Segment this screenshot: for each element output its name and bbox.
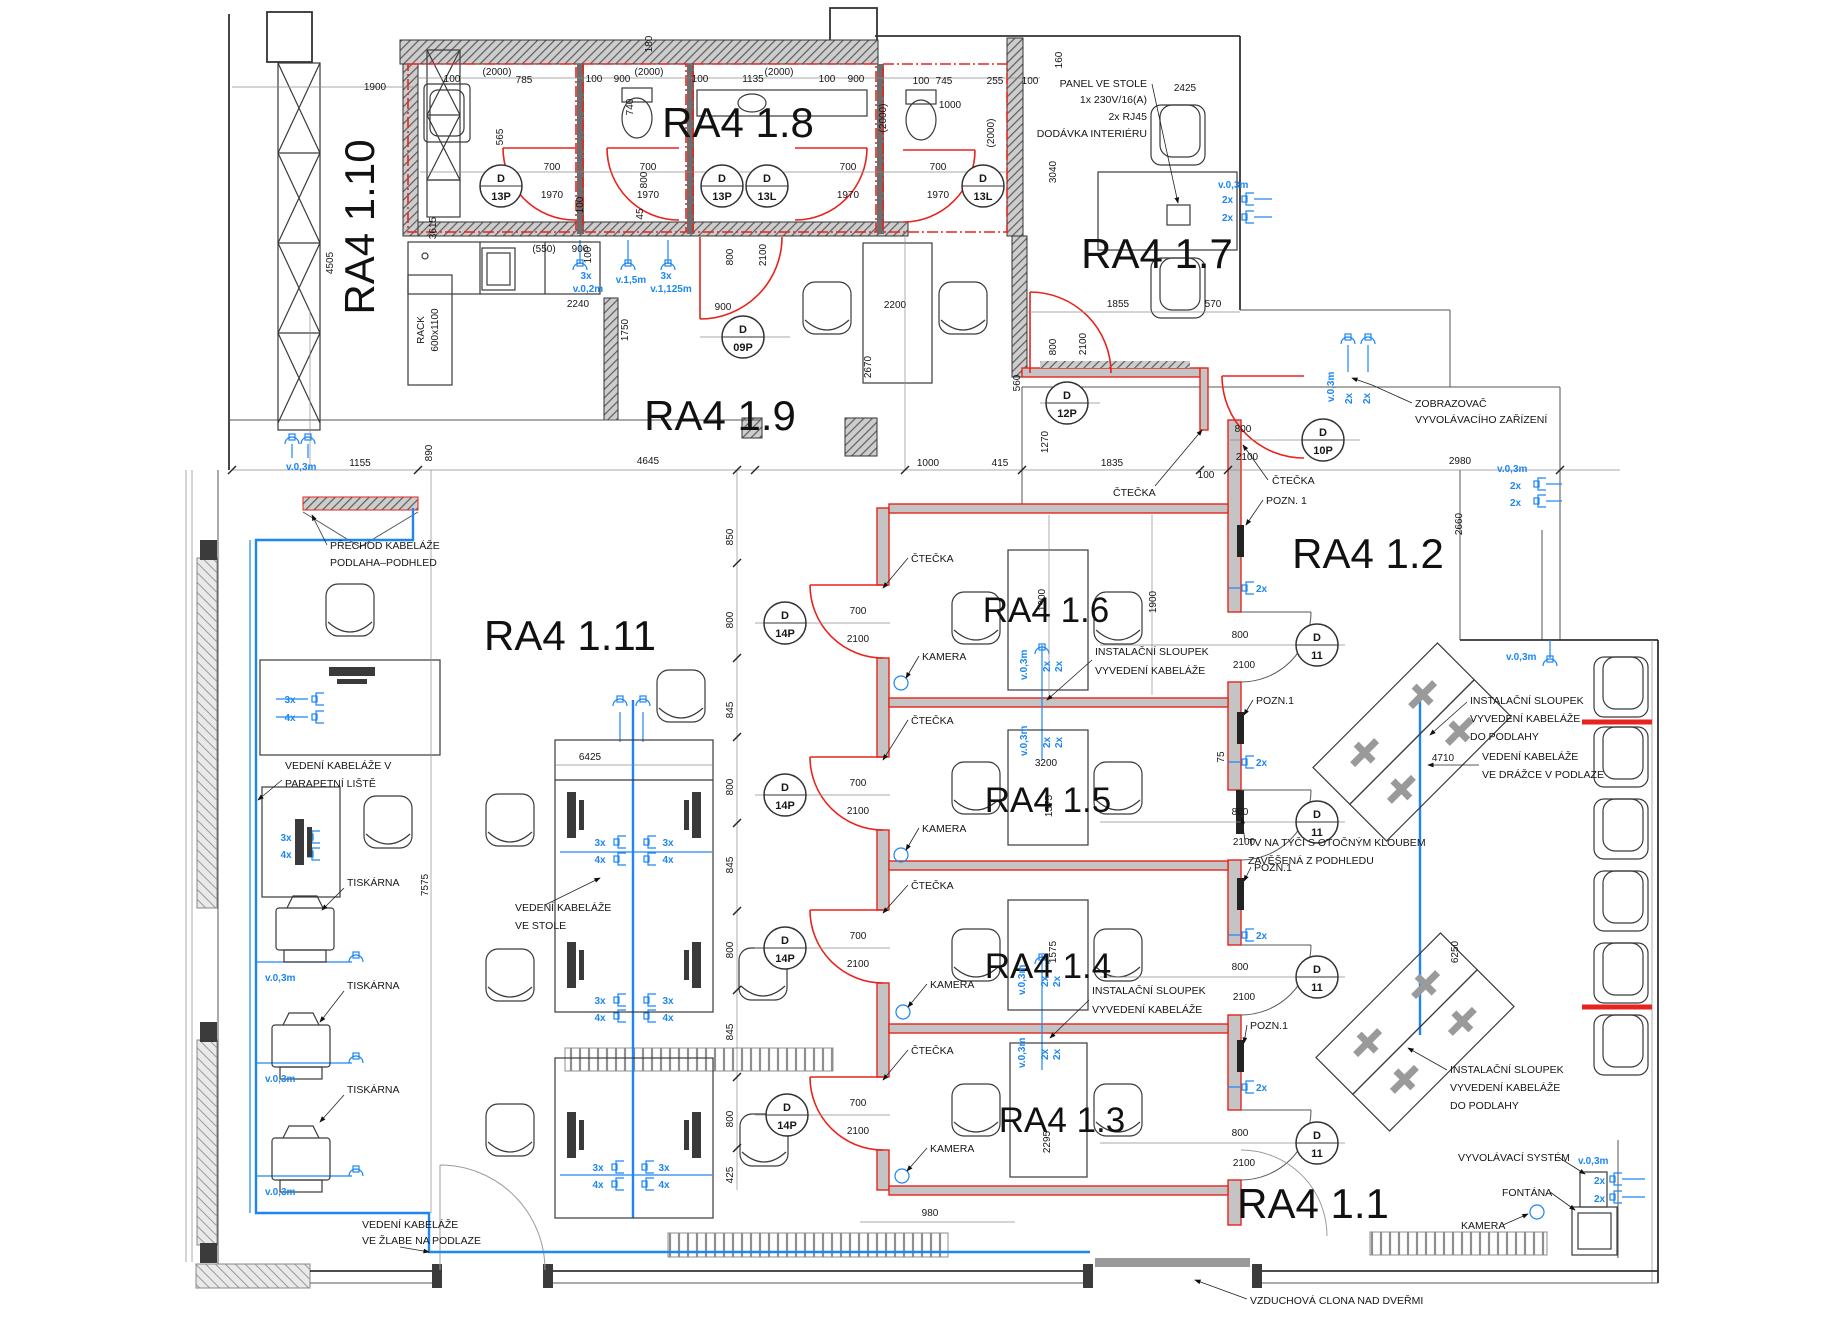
display-note: ZOBRAZOVAČ — [1415, 397, 1487, 410]
dim-text: 100 — [819, 74, 836, 85]
svg-text:14P: 14P — [775, 953, 795, 965]
dim-text: 2660 — [1454, 512, 1465, 535]
install-column-floor-note: VYVEDENÍ KABELÁŽE — [1450, 1081, 1560, 1094]
door-dim: 800 — [1232, 962, 1249, 973]
height-note: v.0,3m — [1326, 372, 1337, 402]
door-dim: 2100 — [1233, 1158, 1256, 1169]
printer — [272, 1013, 330, 1079]
count-note: 3x — [594, 996, 606, 1007]
dim-text: 255 — [987, 76, 1004, 87]
count-note: 4x — [594, 1013, 606, 1024]
dim-text: 900 — [614, 74, 631, 85]
height-note: v.0,3m — [265, 1187, 295, 1198]
dim-text: 100 — [444, 74, 461, 85]
shaft-box — [267, 12, 312, 62]
count-note: 4x — [280, 850, 292, 861]
svg-text:14P: 14P — [777, 1120, 797, 1132]
fountain-label: FONTÁNA — [1502, 1186, 1552, 1199]
parapet-note: PARAPETNÍ LIŠTĚ — [285, 777, 376, 790]
door-dim: 2100 — [1233, 660, 1256, 671]
height-note: v.1,125m — [650, 284, 692, 295]
dim-text: 900 — [572, 244, 589, 255]
room-label-ra4-1-2: RA4 1.2 — [1292, 530, 1444, 577]
floor-trough-note: VE ŽLABE NA PODLAZE — [362, 1234, 481, 1247]
table-panel — [1167, 205, 1190, 225]
install-column-note: INSTALAČNÍ SLOUPEK — [1092, 984, 1206, 997]
door-dim: 700 — [850, 1098, 867, 1109]
dim-text: 100 — [913, 76, 930, 87]
height-note: v.0,3m — [1578, 1156, 1608, 1167]
dim-text: 785 — [516, 75, 533, 86]
dim-text: 1270 — [1040, 430, 1051, 453]
camera-dot — [1530, 1205, 1544, 1219]
svg-text:13L: 13L — [974, 191, 993, 203]
room-label-ra4-1-11: RA4 1.11 — [484, 612, 656, 659]
svg-text:09P: 09P — [733, 342, 753, 354]
dim-text: (2000) — [878, 104, 889, 133]
dim-text: (2000) — [483, 67, 512, 78]
dim-text: 3040 — [1048, 160, 1059, 183]
svg-text:14P: 14P — [775, 628, 795, 640]
dim-text: 800 — [639, 171, 650, 188]
dim-text: 800 — [725, 611, 736, 628]
dim-text: 800 — [725, 941, 736, 958]
dim-text: 6425 — [579, 752, 602, 763]
floor-ceiling-crossing-note: PODLAHA–PODHLED — [330, 557, 437, 569]
dim-text: 845 — [725, 856, 736, 873]
dim-text: 900 — [848, 74, 865, 85]
count-note: 3x — [662, 838, 674, 849]
height-note: v.0,3m — [1019, 650, 1030, 680]
door-dim: 700 — [544, 162, 561, 173]
panel-note: 2x RJ45 — [1108, 111, 1147, 123]
dim-text: 1000 — [939, 100, 962, 111]
svg-text:D: D — [1313, 964, 1321, 976]
dim-text: 845 — [725, 1023, 736, 1040]
install-column-note: VYVEDENÍ KABELÁŽE — [1092, 1003, 1202, 1016]
dim-text: (2000) — [765, 67, 794, 78]
door-dim: 2100 — [847, 806, 870, 817]
count-note: 2x — [1256, 931, 1268, 942]
parapet-note: VEDENÍ KABELÁŽE V — [285, 759, 391, 772]
height-note: v.1,5m — [616, 275, 646, 286]
dim-text: 1900 — [1148, 590, 1159, 613]
dim-text: 1135 — [742, 74, 764, 85]
room-label-ra4-1-7: RA4 1.7 — [1081, 230, 1233, 277]
door-dim: 2100 — [1233, 992, 1256, 1003]
dim-text: 980 — [922, 1208, 939, 1219]
svg-text:D: D — [979, 173, 987, 185]
install-column-note: VYVEDENÍ KABELÁŽE — [1095, 664, 1205, 677]
count-note: 2x — [1054, 660, 1065, 672]
dim-text: 1000 — [917, 458, 940, 469]
cable-crossing-strip — [303, 497, 418, 510]
desk-cable-note: VE STOLE — [515, 920, 566, 932]
door-tag-11: D11 — [1296, 624, 1338, 666]
count-note: 2x — [1042, 736, 1053, 748]
svg-text:D: D — [1313, 632, 1321, 644]
count-note: 4x — [284, 713, 296, 724]
note-label: POZN.1 — [1250, 1020, 1288, 1032]
cable-groove-note: VE DRÁŽCE V PODLAZE — [1482, 768, 1604, 781]
dim-text: 100 — [1198, 470, 1215, 481]
dim-text: 425 — [725, 1166, 736, 1183]
panel-note: 1x 230V/16(A) — [1080, 94, 1147, 106]
svg-text:D: D — [781, 782, 789, 794]
annotations: PANEL VE STOLE 1x 230V/16(A) 2x RJ45 DOD… — [258, 78, 1604, 1307]
dim-text: 3200 — [1035, 758, 1058, 769]
count-note: 3x — [592, 1163, 604, 1174]
camera-label: KAMERA — [930, 979, 974, 991]
cable-groove-note: VEDENÍ KABELÁŽE — [1482, 750, 1578, 763]
dim-text: 800 — [725, 1110, 736, 1127]
dim-text: 1835 — [1101, 458, 1124, 469]
dim-text: 100 — [1022, 76, 1039, 87]
note-label: POZN.1 — [1256, 695, 1294, 707]
reader-label: ČTEČKA — [911, 552, 954, 565]
count-note: 2x — [1040, 975, 1051, 987]
door-dim: 800 — [1232, 630, 1249, 641]
reader-label: ČTEČKA — [911, 1044, 954, 1057]
room-labels: RA4 1.8 RA4 1.9 RA4 1.7 RA4 1.10 RA4 1.1… — [336, 99, 1444, 1227]
reader-label: ČTEČKA — [1113, 486, 1156, 499]
dim-text: 2425 — [1174, 83, 1197, 94]
dim-text: 900 — [715, 302, 732, 313]
height-note: v.0,3m — [1017, 1038, 1028, 1068]
door-dim: 800 — [1048, 338, 1059, 355]
height-note: v.0,3m — [1497, 464, 1527, 475]
camera-label: KAMERA — [1461, 1220, 1505, 1232]
install-column-floor-note: DO PODLAHY — [1450, 1100, 1519, 1112]
door-tag-13L: D13L — [746, 165, 788, 207]
door-dim: 800 — [1232, 807, 1249, 818]
door-tag-10P: D10P — [1302, 419, 1344, 461]
install-column-note: INSTALAČNÍ SLOUPEK — [1095, 645, 1209, 658]
svg-text:11: 11 — [1311, 982, 1323, 994]
radiator — [565, 1048, 833, 1071]
count-note: 2x — [1042, 660, 1053, 672]
count-note: 4x — [594, 855, 606, 866]
svg-text:10P: 10P — [1313, 445, 1333, 457]
height-note: v.0,3m — [286, 462, 316, 473]
count-note: 3x — [580, 271, 592, 282]
door-tag-09P: D09P — [722, 316, 764, 358]
dim-text: 740 — [625, 98, 636, 115]
height-note: v.0,3m — [1019, 726, 1030, 756]
svg-text:13P: 13P — [491, 191, 511, 203]
dim-text: 6250 — [1450, 940, 1461, 963]
dim-text: 415 — [992, 458, 1009, 469]
door-tag-13P: D13P — [701, 165, 743, 207]
room-label-ra4-1-6: RA4 1.6 — [983, 591, 1109, 630]
door-tag-11: D11 — [1296, 1122, 1338, 1164]
room-label-ra4-1-9: RA4 1.9 — [644, 392, 796, 439]
floor-plan-drawing: 100 (2000) 785 100 900 (2000) 100 1135 (… — [0, 0, 1841, 1332]
door-dim: 800 — [1235, 424, 1252, 435]
count-note: 2x — [1256, 1083, 1268, 1094]
queue-system-label: VYVOLÁVACÍ SYSTÉM — [1458, 1151, 1570, 1164]
shaft-box — [830, 8, 877, 42]
svg-text:D: D — [1319, 427, 1327, 439]
height-note: v.0,2m — [573, 284, 603, 295]
room-label-ra4-1-3: RA4 1.3 — [999, 1101, 1125, 1140]
door-tag-14P: D14P — [764, 602, 806, 644]
dim-text: 2200 — [884, 300, 907, 311]
dim-text: (550) — [532, 244, 555, 255]
dim-text: 1855 — [1107, 299, 1130, 310]
dim-text: 100 — [692, 74, 709, 85]
reader-label: ČTEČKA — [1272, 474, 1315, 487]
count-note: 2x — [1510, 481, 1522, 492]
door-tag-14P: D14P — [766, 1094, 808, 1136]
dim-text: 1155 — [349, 458, 371, 469]
door-dim: 800 — [1232, 1128, 1249, 1139]
dim-text: 1900 — [364, 82, 387, 93]
dim-text: 45 — [635, 208, 646, 220]
printer — [276, 896, 334, 962]
door-tag-14P: D14P — [764, 774, 806, 816]
door-dim: 700 — [640, 162, 657, 173]
svg-text:11: 11 — [1311, 1148, 1323, 1160]
camera-label: KAMERA — [930, 1143, 974, 1155]
printer — [272, 1126, 330, 1192]
fountain — [1572, 1207, 1617, 1255]
count-note: 2x — [1054, 736, 1065, 748]
tv-note: TV NA TYČI S OTOČNÝM KLOUBEM — [1248, 836, 1426, 849]
room-label-ra4-1-8: RA4 1.8 — [662, 99, 814, 146]
dim-text: 800 — [725, 778, 736, 795]
svg-text:D: D — [718, 173, 726, 185]
height-note: v.0,3m — [1506, 652, 1536, 663]
sink — [424, 84, 470, 142]
camera-label: KAMERA — [922, 823, 966, 835]
door-dim: 700 — [840, 162, 857, 173]
desk-cable-note: VEDENÍ KABELÁŽE — [515, 901, 611, 914]
install-column-floor-note: VYVEDENÍ KABELÁŽE — [1470, 712, 1580, 725]
room-label-ra4-1-5: RA4 1.5 — [985, 781, 1111, 820]
door-dim: 2100 — [758, 243, 769, 266]
install-column-floor-note: INSTALAČNÍ SLOUPEK — [1470, 694, 1584, 707]
count-note: 2x — [1256, 758, 1268, 769]
dim-text: 850 — [725, 528, 736, 545]
svg-text:14P: 14P — [775, 800, 795, 812]
count-note: 2x — [1052, 975, 1063, 987]
count-note: 4x — [592, 1180, 604, 1191]
count-note: 2x — [1510, 498, 1522, 509]
door-dim: 1970 — [837, 190, 860, 201]
dim-text: 180 — [644, 35, 655, 52]
door-tag-13L: D13L — [962, 165, 1004, 207]
door-tag-12P: D12P — [1046, 382, 1088, 424]
count-note: 3x — [280, 833, 292, 844]
radiator — [668, 1233, 948, 1257]
dim-text: 4645 — [637, 456, 660, 467]
svg-text:D: D — [1313, 809, 1321, 821]
reader-label: ČTEČKA — [911, 879, 954, 892]
count-note: 4x — [658, 1180, 670, 1191]
svg-text:13P: 13P — [712, 191, 732, 203]
door-dim: 700 — [850, 931, 867, 942]
count-note: 2x — [1222, 213, 1234, 224]
svg-text:D: D — [1313, 1130, 1321, 1142]
svg-text:D: D — [1063, 390, 1071, 402]
door-tag-14P: D14P — [764, 927, 806, 969]
furniture — [260, 84, 1648, 1255]
svg-text:D: D — [497, 173, 505, 185]
toilet — [906, 100, 936, 140]
camera-label: KAMERA — [922, 651, 966, 663]
floor-plan-page: 100 (2000) 785 100 900 (2000) 100 1135 (… — [0, 0, 1841, 1332]
floor-trough-note: VEDENÍ KABELÁŽE — [362, 1218, 458, 1231]
install-column-floor-note: DO PODLAHY — [1470, 731, 1539, 743]
dim-text: 4710 — [1432, 753, 1455, 764]
height-note: v.0,3m — [1218, 180, 1248, 191]
door-dim: 2100 — [847, 1126, 870, 1137]
count-note: 2x — [1222, 195, 1234, 206]
dim-text: 160 — [1054, 51, 1065, 68]
floor-ceiling-crossing-note: PŘECHOD KABELÁŽE — [330, 539, 440, 552]
svg-text:11: 11 — [1311, 650, 1323, 662]
dim-text: 890 — [424, 444, 435, 461]
dim-text: 2980 — [1449, 456, 1472, 467]
door-dim: 1970 — [541, 190, 564, 201]
dim-text: 100 — [586, 74, 603, 85]
install-column-floor-note: INSTALAČNÍ SLOUPEK — [1450, 1063, 1564, 1076]
count-note: 2x — [1594, 1176, 1606, 1187]
radiator — [1370, 1232, 1547, 1255]
count-note: 3x — [594, 838, 606, 849]
door-dim: 2100 — [847, 634, 870, 645]
note-label: POZN. 1 — [1266, 495, 1307, 507]
dim-text: 565 — [495, 128, 506, 145]
room-label-ra4-1-1: RA4 1.1 — [1237, 1180, 1389, 1227]
walls — [186, 8, 1658, 1288]
door-dim: 800 — [725, 248, 736, 265]
door-tag-11: D11 — [1296, 956, 1338, 998]
count-note: 3x — [660, 271, 672, 282]
svg-text:D: D — [781, 935, 789, 947]
reader-label: ČTEČKA — [911, 714, 954, 727]
printer-label: TISKÁRNA — [347, 876, 400, 889]
printer-label: TISKÁRNA — [347, 979, 400, 992]
count-note: 2x — [1344, 392, 1355, 404]
door-tag-13P: D13P — [480, 165, 522, 207]
door-dim: 2100 — [847, 959, 870, 970]
panel-note: DODÁVKA INTERIÉRU — [1037, 127, 1147, 140]
svg-text:D: D — [783, 1102, 791, 1114]
dim-text: 2670 — [863, 355, 874, 378]
count-note: 3x — [662, 996, 674, 1007]
dim-text: (2000) — [986, 119, 997, 148]
rack-label: 600x1100 — [430, 308, 441, 352]
tv-note: ZAVĚŠENÁ Z PODHLEDU — [1248, 854, 1374, 867]
svg-text:D: D — [739, 324, 747, 336]
dim-text: 745 — [936, 76, 953, 87]
dim-text: 7575 — [420, 873, 431, 896]
height-note: v.0,3m — [265, 973, 295, 984]
door-dim: 700 — [850, 606, 867, 617]
air-curtain-label: VZDUCHOVÁ CLONA NAD DVEŘMI — [1250, 1294, 1423, 1307]
door-dim: 1970 — [927, 190, 950, 201]
dim-text: (2000) — [635, 67, 664, 78]
dim-text: 570 — [1205, 299, 1222, 310]
door-dim: 700 — [850, 778, 867, 789]
dim-text: 845 — [725, 701, 736, 718]
air-curtain — [1095, 1258, 1250, 1267]
dim-text: 560 — [1012, 374, 1023, 391]
count-note: 2x — [1362, 392, 1373, 404]
rack-label: RACK — [416, 316, 427, 344]
count-note: 2x — [1040, 1048, 1051, 1060]
door-dim: 700 — [930, 162, 947, 173]
count-note: 3x — [658, 1163, 670, 1174]
count-note: 3x — [284, 695, 296, 706]
count-note: 2x — [1052, 1048, 1063, 1060]
svg-text:D: D — [763, 173, 771, 185]
dim-text: 2240 — [567, 299, 590, 310]
printer-label: TISKÁRNA — [347, 1083, 400, 1096]
height-note: v.0,3m — [1017, 965, 1028, 995]
count-note: 4x — [662, 1013, 674, 1024]
dim-text: 4505 — [325, 251, 336, 274]
height-note: v.0,3m — [265, 1074, 295, 1085]
door-dim: 2100 — [1078, 332, 1089, 355]
dim-text: 75 — [1216, 751, 1227, 763]
count-note: 2x — [1594, 1194, 1606, 1205]
svg-text:12P: 12P — [1057, 408, 1077, 420]
dim-text: 1750 — [620, 318, 631, 341]
panel-note: PANEL VE STOLE — [1060, 78, 1147, 90]
count-note: 4x — [662, 855, 674, 866]
svg-text:13L: 13L — [758, 191, 777, 203]
svg-text:D: D — [781, 610, 789, 622]
dim-text: 3615 — [428, 216, 439, 239]
display-note: VYVOLÁVACÍHO ZAŘÍZENÍ — [1415, 413, 1547, 426]
dim-text: 100 — [575, 196, 586, 213]
door-dim: 1970 — [637, 190, 660, 201]
room-label-ra4-1-10: RA4 1.10 — [336, 139, 383, 314]
count-note: 2x — [1256, 584, 1268, 595]
